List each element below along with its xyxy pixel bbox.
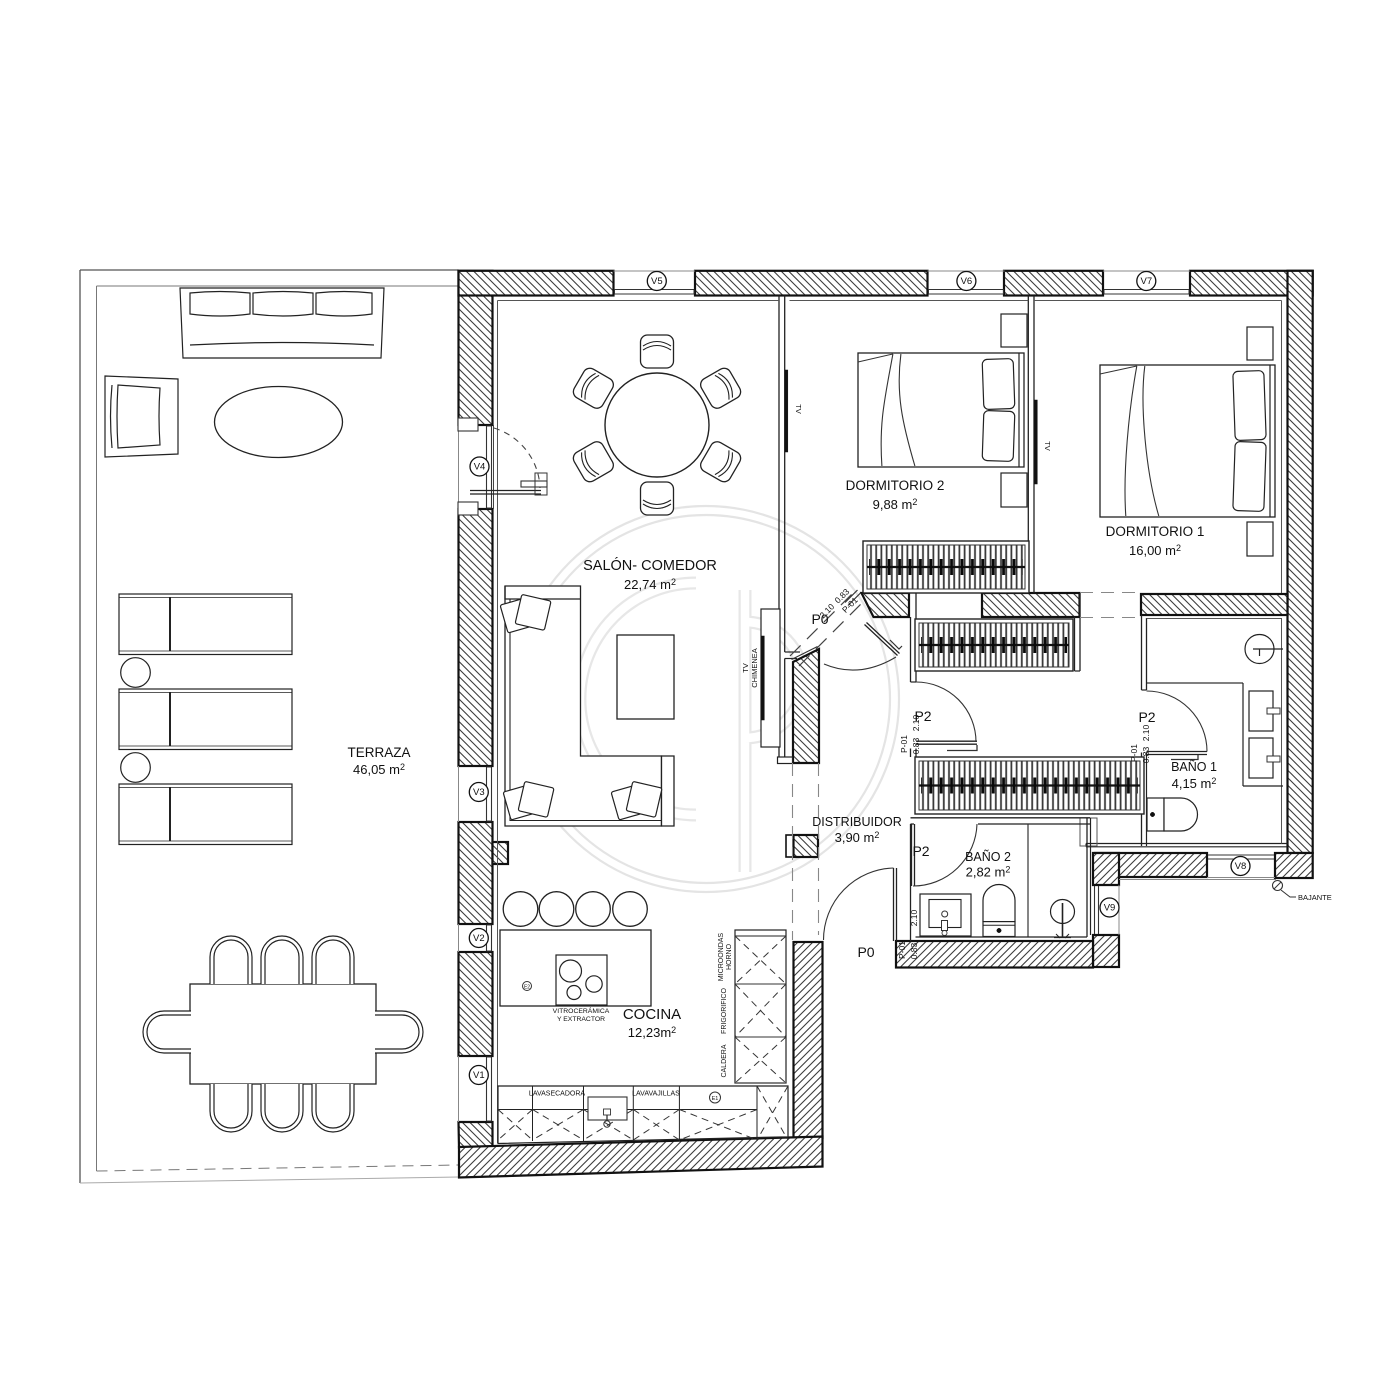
svg-text:V3: V3 bbox=[473, 787, 485, 798]
svg-text:22,74 m2: 22,74 m2 bbox=[624, 577, 676, 592]
svg-text:VITROCERÁMICA: VITROCERÁMICA bbox=[553, 1006, 610, 1015]
svg-text:TERRAZA: TERRAZA bbox=[347, 745, 410, 760]
svg-text:2.10: 2.10 bbox=[909, 909, 919, 926]
svg-text:LAVASECADORA: LAVASECADORA bbox=[529, 1091, 585, 1098]
svg-text:V4: V4 bbox=[474, 462, 486, 473]
svg-text:2,82 m2: 2,82 m2 bbox=[966, 865, 1011, 880]
svg-text:P-01: P-01 bbox=[899, 735, 909, 753]
svg-text:E2: E2 bbox=[524, 985, 530, 991]
svg-text:12,23m2: 12,23m2 bbox=[628, 1025, 676, 1040]
svg-text:P-01: P-01 bbox=[897, 941, 907, 959]
svg-text:Y EXTRACTOR: Y EXTRACTOR bbox=[557, 1016, 605, 1023]
svg-text:V1: V1 bbox=[473, 1070, 485, 1081]
svg-text:V9: V9 bbox=[1104, 903, 1116, 914]
svg-text:16,00 m2: 16,00 m2 bbox=[1129, 543, 1181, 558]
svg-text:V5: V5 bbox=[651, 276, 663, 287]
svg-text:SALÓN- COMEDOR: SALÓN- COMEDOR bbox=[583, 557, 717, 574]
svg-text:P2: P2 bbox=[1138, 709, 1155, 725]
svg-text:DISTRIBUIDOR: DISTRIBUIDOR bbox=[812, 815, 902, 829]
svg-text:0.83: 0.83 bbox=[909, 942, 919, 959]
svg-text:V8: V8 bbox=[1235, 861, 1247, 872]
svg-text:BAÑO 2: BAÑO 2 bbox=[965, 850, 1011, 864]
svg-text:V2: V2 bbox=[473, 933, 485, 944]
svg-text:9,88 m2: 9,88 m2 bbox=[873, 497, 918, 512]
svg-text:COCINA: COCINA bbox=[623, 1006, 681, 1023]
svg-text:P0: P0 bbox=[857, 944, 874, 960]
svg-text:46,05 m2: 46,05 m2 bbox=[353, 762, 405, 777]
svg-text:E1: E1 bbox=[712, 1096, 719, 1102]
svg-text:LAVAVAJILLAS: LAVAVAJILLAS bbox=[632, 1091, 680, 1098]
svg-text:V6: V6 bbox=[961, 276, 973, 287]
svg-text:2.10: 2.10 bbox=[1141, 724, 1151, 741]
svg-text:CALDERA: CALDERA bbox=[721, 1044, 728, 1077]
svg-text:TV: TV bbox=[1043, 441, 1052, 451]
svg-text:0.83: 0.83 bbox=[1141, 746, 1151, 763]
svg-text:3,90 m2: 3,90 m2 bbox=[835, 830, 880, 845]
svg-text:0.83: 0.83 bbox=[911, 737, 921, 754]
svg-text:DORMITORIO 1: DORMITORIO 1 bbox=[1106, 524, 1205, 539]
svg-text:P2: P2 bbox=[912, 843, 929, 859]
svg-text:HORNO: HORNO bbox=[726, 943, 733, 970]
svg-text:4,15 m2: 4,15 m2 bbox=[1172, 776, 1217, 791]
svg-text:TV: TV bbox=[741, 663, 750, 673]
svg-text:2.10: 2.10 bbox=[911, 714, 921, 731]
svg-text:TV: TV bbox=[794, 404, 803, 414]
svg-text:MICROONDAS: MICROONDAS bbox=[718, 933, 725, 982]
svg-text:V7: V7 bbox=[1140, 276, 1152, 287]
svg-text:P-01: P-01 bbox=[1129, 744, 1139, 762]
svg-text:BAJANTE: BAJANTE bbox=[1298, 893, 1332, 902]
svg-text:DORMITORIO 2: DORMITORIO 2 bbox=[846, 478, 945, 493]
svg-text:CHIMENEA: CHIMENEA bbox=[750, 648, 759, 688]
svg-text:FRIGORIFICO: FRIGORIFICO bbox=[721, 988, 728, 1034]
svg-text:BAÑO 1: BAÑO 1 bbox=[1171, 760, 1217, 774]
